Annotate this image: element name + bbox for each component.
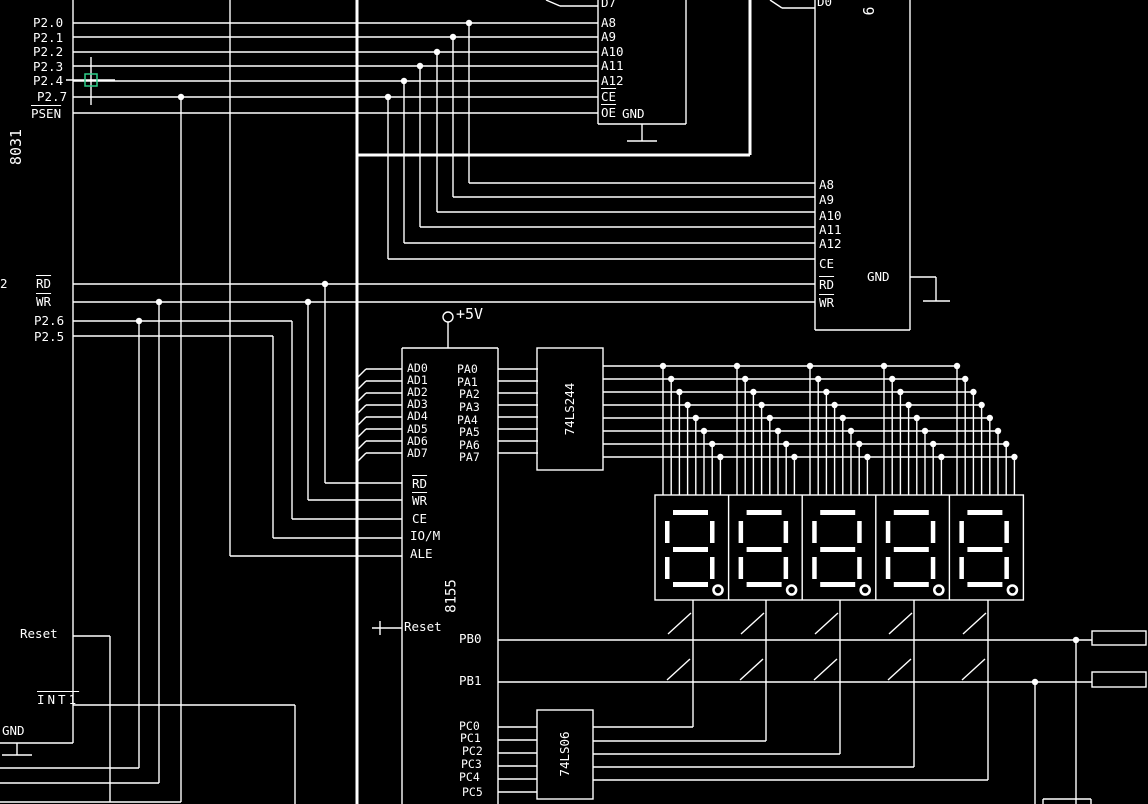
chip-label-74ls06: 74LS06 bbox=[558, 731, 572, 776]
pin-label-sram-gnd: GND bbox=[867, 270, 890, 284]
pin-label-eprom-d7: D7 bbox=[601, 0, 616, 10]
wire bbox=[962, 659, 985, 680]
seven-segment-digit bbox=[886, 510, 944, 595]
wire bbox=[815, 613, 838, 634]
junction-dot bbox=[322, 281, 328, 287]
junction-dot bbox=[922, 428, 928, 434]
junction-dot bbox=[987, 415, 993, 421]
pin-label-eprom-oe: OE bbox=[601, 106, 616, 120]
junction-dot bbox=[709, 441, 715, 447]
junction-dot bbox=[693, 415, 699, 421]
pin-label-cpu-wr: WR bbox=[36, 295, 51, 309]
vcc-label: +5V bbox=[456, 306, 483, 323]
junction-dot bbox=[970, 389, 976, 395]
junction-dot bbox=[938, 454, 944, 460]
pin-label-pc3: PC3 bbox=[461, 758, 482, 771]
junction-dot bbox=[758, 402, 764, 408]
resistor-1 bbox=[1092, 631, 1146, 645]
junction-dot bbox=[136, 318, 142, 324]
pin-label-pb1: PB1 bbox=[459, 674, 482, 688]
pin-label-p2-7: P2.7 bbox=[37, 90, 67, 104]
junction-dot bbox=[417, 63, 423, 69]
pin-label-pa7: PA7 bbox=[459, 451, 480, 464]
wire bbox=[667, 659, 690, 680]
chip-label-74ls244: 74LS244 bbox=[563, 383, 577, 436]
junction-dot bbox=[767, 415, 773, 421]
chip-label-sram: 6 bbox=[861, 6, 878, 15]
wire bbox=[770, 0, 782, 8]
junction-dot bbox=[178, 94, 184, 100]
wire bbox=[741, 613, 764, 634]
vcc-terminal-icon bbox=[443, 312, 453, 322]
wire bbox=[888, 659, 911, 680]
chip-label-8031: 8031 bbox=[8, 129, 25, 165]
pin-label-cpu-gnd: GND bbox=[2, 724, 25, 738]
pin-label-ad4: AD4 bbox=[407, 410, 428, 423]
pin-label-pio-iom: IO/M bbox=[410, 529, 440, 543]
wire bbox=[963, 613, 986, 634]
pin-label-sram-a9: A9 bbox=[819, 193, 834, 207]
pin-label-p2-6: P2.6 bbox=[34, 314, 64, 328]
pin-label-pc4: PC4 bbox=[459, 771, 480, 784]
pin-label-pio-ce: CE bbox=[412, 512, 427, 526]
pin-label-p2-0: P2.0 bbox=[33, 16, 63, 30]
pin-label-cpu-reset: Reset bbox=[20, 627, 58, 641]
junction-dot bbox=[717, 454, 723, 460]
wire-segments bbox=[0, 0, 1092, 804]
pin-label-sram-a10: A10 bbox=[819, 209, 842, 223]
junction-dot bbox=[676, 389, 682, 395]
junction-dot bbox=[840, 415, 846, 421]
pin-label-sram-a12: A12 bbox=[819, 237, 842, 251]
pin-label-eprom-ce: CE bbox=[601, 90, 616, 104]
pin-label-pc1: PC1 bbox=[460, 732, 481, 745]
junction-dot bbox=[156, 299, 162, 305]
schematic-canvas[interactable]: P2.0 P2.1 P2.2 P2.3 P2.4 P2.7 PSEN 2 RD … bbox=[0, 0, 1148, 804]
pin-label-eprom-a10: A10 bbox=[601, 45, 624, 59]
pin-label-eprom-a11: A11 bbox=[601, 59, 624, 73]
wire bbox=[668, 613, 691, 634]
junction-dot bbox=[684, 402, 690, 408]
seven-segment-displays bbox=[655, 495, 1023, 600]
junction-dot bbox=[734, 363, 740, 369]
junction-dot bbox=[434, 49, 440, 55]
junction-dot bbox=[660, 363, 666, 369]
pin-label-pio-reset: Reset bbox=[404, 620, 442, 634]
pin-label-p2-3: P2.3 bbox=[33, 60, 63, 74]
junction-dot bbox=[856, 441, 862, 447]
pin-label-sram-rd: RD bbox=[819, 278, 834, 292]
junction-dot bbox=[978, 402, 984, 408]
junction-dot bbox=[701, 428, 707, 434]
pin-label-pa5: PA5 bbox=[459, 426, 480, 439]
wire bbox=[546, 0, 560, 6]
pin-label-psen: PSEN bbox=[31, 107, 61, 121]
junction-dot bbox=[1073, 637, 1079, 643]
seven-segment-digit bbox=[665, 510, 723, 595]
pin-label-sram-d0: D0 bbox=[817, 0, 832, 9]
junction-dot bbox=[742, 376, 748, 382]
junction-dot bbox=[775, 428, 781, 434]
junction-dot bbox=[815, 376, 821, 382]
wire bbox=[889, 613, 912, 634]
pin-label-eprom-a8: A8 bbox=[601, 16, 616, 30]
pin-label-pc5: PC5 bbox=[462, 786, 483, 799]
chip-boxes bbox=[443, 312, 1146, 799]
pin-label-eprom-gnd: GND bbox=[622, 107, 645, 121]
junction-dot bbox=[1032, 679, 1038, 685]
pin-label-pb0: PB0 bbox=[459, 632, 482, 646]
pin-label-pa0: PA0 bbox=[457, 363, 478, 376]
pin-label-p2-5: P2.5 bbox=[34, 330, 64, 344]
decimal-point-icon bbox=[714, 586, 723, 595]
pin-label-pio-rd: RD bbox=[412, 477, 427, 491]
pin-label-eprom-a12: A12 bbox=[601, 74, 624, 88]
pin-label-eprom-a9: A9 bbox=[601, 30, 616, 44]
pin-label-pa3: PA3 bbox=[459, 401, 480, 414]
junction-dot bbox=[1011, 454, 1017, 460]
pin-label-pio-wr: WR bbox=[412, 494, 427, 508]
junction-dot bbox=[962, 376, 968, 382]
seven-segment-digit bbox=[739, 510, 797, 595]
pin-label-sram-a8: A8 bbox=[819, 178, 834, 192]
pin-label-pa2: PA2 bbox=[459, 388, 480, 401]
junction-dot bbox=[750, 389, 756, 395]
junction-dot bbox=[791, 454, 797, 460]
pin-label-p2-2: P2.2 bbox=[33, 45, 63, 59]
pin-label-ad7: AD7 bbox=[407, 447, 428, 460]
junction-dot bbox=[848, 428, 854, 434]
junction-dot bbox=[385, 94, 391, 100]
pin-label-sram-a11: A11 bbox=[819, 223, 842, 237]
resistor-2 bbox=[1092, 672, 1146, 687]
junction-dot bbox=[905, 402, 911, 408]
junction-dot bbox=[889, 376, 895, 382]
junction-dot bbox=[897, 389, 903, 395]
junction-dot bbox=[450, 34, 456, 40]
pin-label-cpu-rd: RD bbox=[36, 277, 51, 291]
junction-dot bbox=[807, 363, 813, 369]
junction-dot bbox=[401, 78, 407, 84]
pin-label-sram-ce: CE bbox=[819, 257, 834, 271]
junction-dot bbox=[954, 363, 960, 369]
edge-label-2: 2 bbox=[0, 277, 8, 291]
junction-dot bbox=[995, 428, 1001, 434]
pin-label-p2-1: P2.1 bbox=[33, 31, 63, 45]
chip-label-8155: 8155 bbox=[444, 579, 459, 613]
pin-label-sram-wr: WR bbox=[819, 296, 834, 310]
junction-dot bbox=[930, 441, 936, 447]
wire bbox=[814, 659, 837, 680]
pin-label-pio-ale: ALE bbox=[410, 547, 433, 561]
pin-label-p2-4: P2.4 bbox=[33, 74, 63, 88]
junction-dot bbox=[881, 363, 887, 369]
junction-dot bbox=[864, 454, 870, 460]
junction-dot bbox=[466, 20, 472, 26]
junction-dot bbox=[668, 376, 674, 382]
junction-dot bbox=[914, 415, 920, 421]
seven-segment-digit bbox=[959, 510, 1017, 595]
junction-dot bbox=[1003, 441, 1009, 447]
junction-dot bbox=[823, 389, 829, 395]
pin-label-pc2: PC2 bbox=[462, 745, 483, 758]
junction-dot bbox=[831, 402, 837, 408]
seven-segment-digit bbox=[812, 510, 870, 595]
pin-label-int1: INT1 bbox=[37, 693, 79, 707]
wire bbox=[740, 659, 763, 680]
junction-dot bbox=[783, 441, 789, 447]
junction-dot bbox=[305, 299, 311, 305]
